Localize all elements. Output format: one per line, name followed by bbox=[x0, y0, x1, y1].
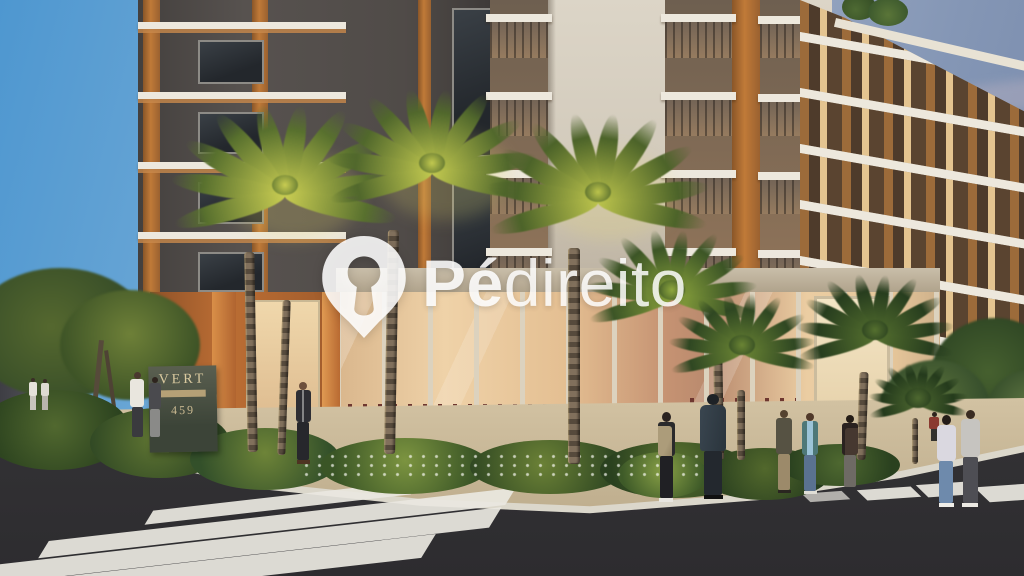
pedestrian-talking-man-olive bbox=[774, 410, 794, 493]
floor-slab bbox=[758, 172, 804, 180]
watermark-wordmark: Pédireito bbox=[422, 250, 687, 316]
balcony-railing bbox=[490, 22, 548, 58]
floor-slab bbox=[661, 170, 736, 178]
slab-soffit bbox=[138, 239, 346, 243]
pedestrian-crossing-woman bbox=[934, 415, 958, 507]
floor-slab bbox=[758, 94, 804, 102]
pedestrian-couple-at-sign bbox=[128, 372, 146, 437]
balcony-railing bbox=[760, 102, 800, 136]
slab-soffit bbox=[138, 29, 346, 33]
pedestrian-away-man bbox=[840, 415, 860, 487]
slab-soffit bbox=[138, 99, 346, 103]
location-pin-keyhole-icon bbox=[318, 234, 410, 340]
floor-slab bbox=[661, 14, 736, 22]
pedestrian-talking-man-teal bbox=[800, 413, 820, 494]
balcony-railing bbox=[760, 180, 800, 214]
palm-crown-core bbox=[729, 335, 755, 355]
palm-crown-core bbox=[862, 320, 888, 340]
rendering-scene: VERT 459 bbox=[0, 0, 1024, 576]
balcony-railing bbox=[760, 24, 800, 58]
balcony-railing bbox=[665, 100, 732, 136]
pedestrian-suit-man bbox=[293, 382, 313, 464]
watermark-logo: Pédireito bbox=[318, 234, 687, 340]
palm-trunk bbox=[737, 390, 745, 460]
pedestrian-hoodie-man bbox=[698, 394, 728, 499]
pedestrian-crossing-man bbox=[958, 410, 982, 507]
palm-crown-core bbox=[905, 388, 931, 408]
balcony-railing bbox=[665, 22, 732, 58]
palm-crown-core bbox=[272, 175, 298, 195]
sign-subtitle-bar bbox=[160, 390, 206, 398]
brand-bold: Pé bbox=[422, 246, 504, 320]
rooftop-plants bbox=[868, 0, 908, 26]
pedestrian-far-white-pair bbox=[28, 378, 38, 410]
window bbox=[198, 40, 264, 84]
floor-slab bbox=[758, 250, 804, 258]
floor-slab bbox=[661, 92, 736, 100]
pedestrian-couple-at-sign bbox=[147, 377, 163, 437]
floor-slab bbox=[758, 16, 804, 24]
palm-crown-core bbox=[419, 153, 445, 173]
pedestrian-crossbody-woman bbox=[655, 412, 677, 502]
floor-slab bbox=[486, 92, 552, 100]
floor-slab bbox=[138, 22, 346, 29]
floor-slab bbox=[486, 14, 552, 22]
pedestrian-far-white-pair bbox=[40, 379, 50, 410]
floor-slab bbox=[138, 92, 346, 99]
palm-trunk bbox=[912, 418, 918, 464]
palm-crown-core bbox=[585, 182, 611, 202]
brand-light: direito bbox=[504, 246, 687, 320]
